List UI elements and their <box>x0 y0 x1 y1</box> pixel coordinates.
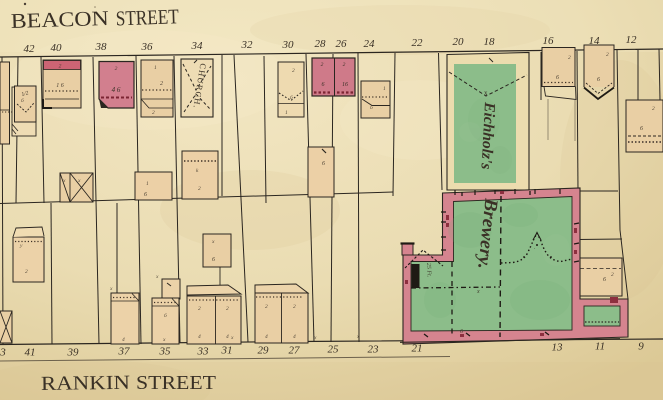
svg-text:4: 4 <box>198 333 201 340</box>
svg-text:4: 4 <box>226 333 229 340</box>
svg-text:9: 9 <box>638 341 644 353</box>
svg-text:23: 23 <box>368 344 380 356</box>
svg-text:1: 1 <box>154 65 157 71</box>
svg-text:6: 6 <box>164 313 167 319</box>
svg-text:6: 6 <box>290 95 293 101</box>
svg-text:2: 2 <box>265 304 268 310</box>
svg-text:x: x <box>476 289 480 295</box>
svg-text:2: 2 <box>568 55 571 61</box>
svg-text:6: 6 <box>597 77 600 83</box>
svg-text:1: 1 <box>285 110 288 116</box>
svg-text:34: 34 <box>191 40 204 52</box>
svg-text:1: 1 <box>146 181 149 187</box>
svg-text:x: x <box>109 286 113 292</box>
svg-text:2: 2 <box>343 62 346 68</box>
svg-text:x: x <box>230 335 234 341</box>
svg-text:4 6: 4 6 <box>112 86 121 94</box>
svg-text:16: 16 <box>342 82 348 88</box>
svg-text:36: 36 <box>141 41 154 53</box>
svg-text:6: 6 <box>212 257 215 263</box>
svg-text:x: x <box>484 89 488 97</box>
svg-text:41: 41 <box>25 347 36 359</box>
svg-text:x: x <box>313 335 317 341</box>
svg-text:4: 4 <box>265 333 268 340</box>
svg-text:2: 2 <box>198 306 201 312</box>
svg-text:2: 2 <box>25 269 28 275</box>
svg-text:1: 1 <box>383 86 386 92</box>
svg-text:6: 6 <box>460 329 463 335</box>
svg-text:x: x <box>162 337 166 343</box>
svg-text:27: 27 <box>289 345 301 357</box>
svg-text:6: 6 <box>21 98 24 104</box>
svg-text:x: x <box>155 274 159 280</box>
svg-text:12: 12 <box>626 34 638 46</box>
svg-text:2: 2 <box>292 68 295 74</box>
svg-text:6: 6 <box>640 126 643 132</box>
svg-text:39: 39 <box>67 347 80 359</box>
svg-text:x: x <box>356 334 360 340</box>
svg-text:33: 33 <box>197 346 210 358</box>
svg-text:40: 40 <box>51 42 63 54</box>
svg-text:22: 22 <box>412 37 424 49</box>
svg-text:38: 38 <box>95 41 108 53</box>
svg-text:32: 32 <box>241 39 254 51</box>
svg-text:BEACON: BEACON <box>10 6 109 33</box>
svg-text:Eichholz's: Eichholz's <box>477 101 498 170</box>
svg-text:RANKIN: RANKIN <box>41 372 130 395</box>
svg-text:21: 21 <box>412 343 423 355</box>
svg-text:2: 2 <box>160 81 163 87</box>
svg-text:1 6: 1 6 <box>56 83 64 89</box>
svg-text:2: 2 <box>293 304 296 310</box>
svg-text:11: 11 <box>595 341 605 353</box>
svg-text:x: x <box>62 178 66 184</box>
svg-text:13: 13 <box>552 342 564 354</box>
svg-text:2: 2 <box>226 306 229 312</box>
svg-text:25: 25 <box>328 344 340 356</box>
svg-text:2: 2 <box>606 52 609 58</box>
svg-text:.: . <box>534 245 536 251</box>
svg-text:31: 31 <box>221 345 233 357</box>
svg-text:4: 4 <box>122 336 125 343</box>
svg-text:24: 24 <box>364 38 376 50</box>
svg-text:30: 30 <box>282 39 295 51</box>
svg-text:x: x <box>211 239 215 245</box>
svg-text:42: 42 <box>24 43 36 55</box>
svg-text:3: 3 <box>0 347 6 359</box>
svg-text:28: 28 <box>315 38 327 50</box>
svg-text:6: 6 <box>322 161 325 167</box>
svg-text:2: 2 <box>115 66 118 72</box>
svg-text:y: y <box>19 243 23 249</box>
svg-text:STREET: STREET <box>115 4 179 30</box>
svg-text:20: 20 <box>453 36 465 48</box>
svg-text:2: 2 <box>611 272 614 278</box>
svg-text:x: x <box>77 178 81 184</box>
svg-text:29: 29 <box>258 345 270 357</box>
svg-text:2: 2 <box>59 64 62 70</box>
svg-text:2: 2 <box>198 186 201 192</box>
svg-text:6: 6 <box>370 105 373 111</box>
svg-text:16: 16 <box>543 35 555 47</box>
svg-text:37: 37 <box>118 346 131 358</box>
svg-text:2: 2 <box>152 110 155 116</box>
svg-text:26: 26 <box>336 38 348 50</box>
svg-text:6: 6 <box>322 82 325 88</box>
svg-text:2: 2 <box>652 106 655 112</box>
svg-text:25 Ft.: 25 Ft. <box>425 263 432 278</box>
svg-text:18: 18 <box>484 36 496 48</box>
svg-text:4: 4 <box>293 333 296 340</box>
svg-text:6: 6 <box>556 75 559 81</box>
svg-text:6: 6 <box>144 192 147 198</box>
svg-text:STREET: STREET <box>136 372 216 394</box>
svg-text:6: 6 <box>603 277 606 283</box>
svg-text:35: 35 <box>159 346 172 358</box>
svg-text:2: 2 <box>321 62 324 68</box>
